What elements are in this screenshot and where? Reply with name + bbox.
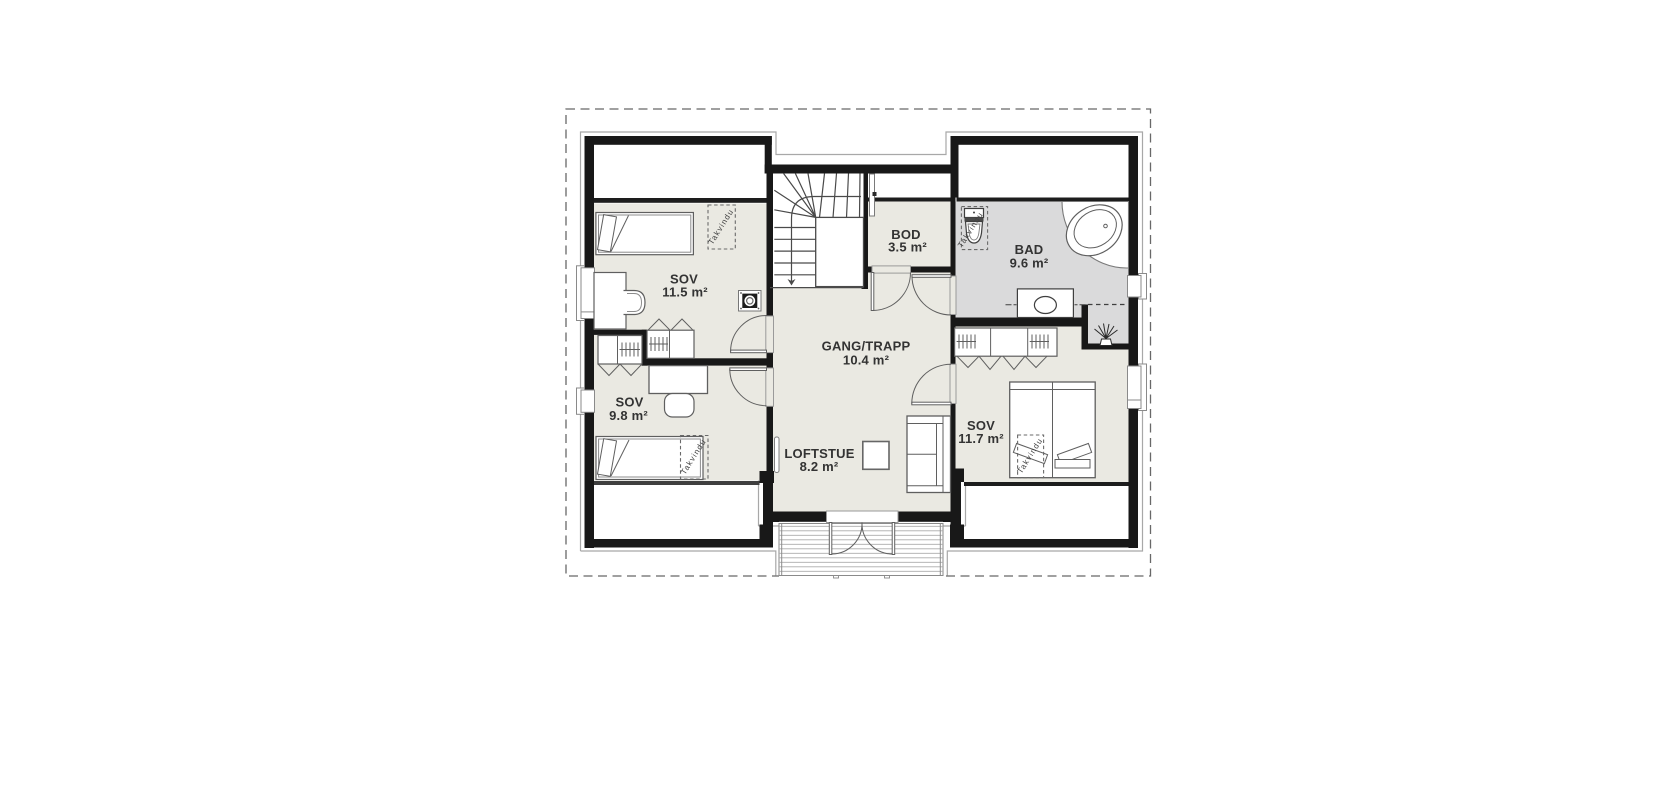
svg-text:10.4 m²: 10.4 m² (843, 353, 890, 368)
svg-text:8.2 m²: 8.2 m² (800, 459, 839, 474)
svg-text:11.5 m²: 11.5 m² (662, 285, 708, 300)
svg-text:11.7 m²: 11.7 m² (958, 431, 1004, 446)
svg-text:9.6 m²: 9.6 m² (1010, 256, 1049, 271)
svg-text:9.8 m²: 9.8 m² (609, 408, 648, 423)
svg-text:3.5 m²: 3.5 m² (888, 240, 927, 255)
svg-text:GANG/TRAPP: GANG/TRAPP (822, 339, 911, 354)
